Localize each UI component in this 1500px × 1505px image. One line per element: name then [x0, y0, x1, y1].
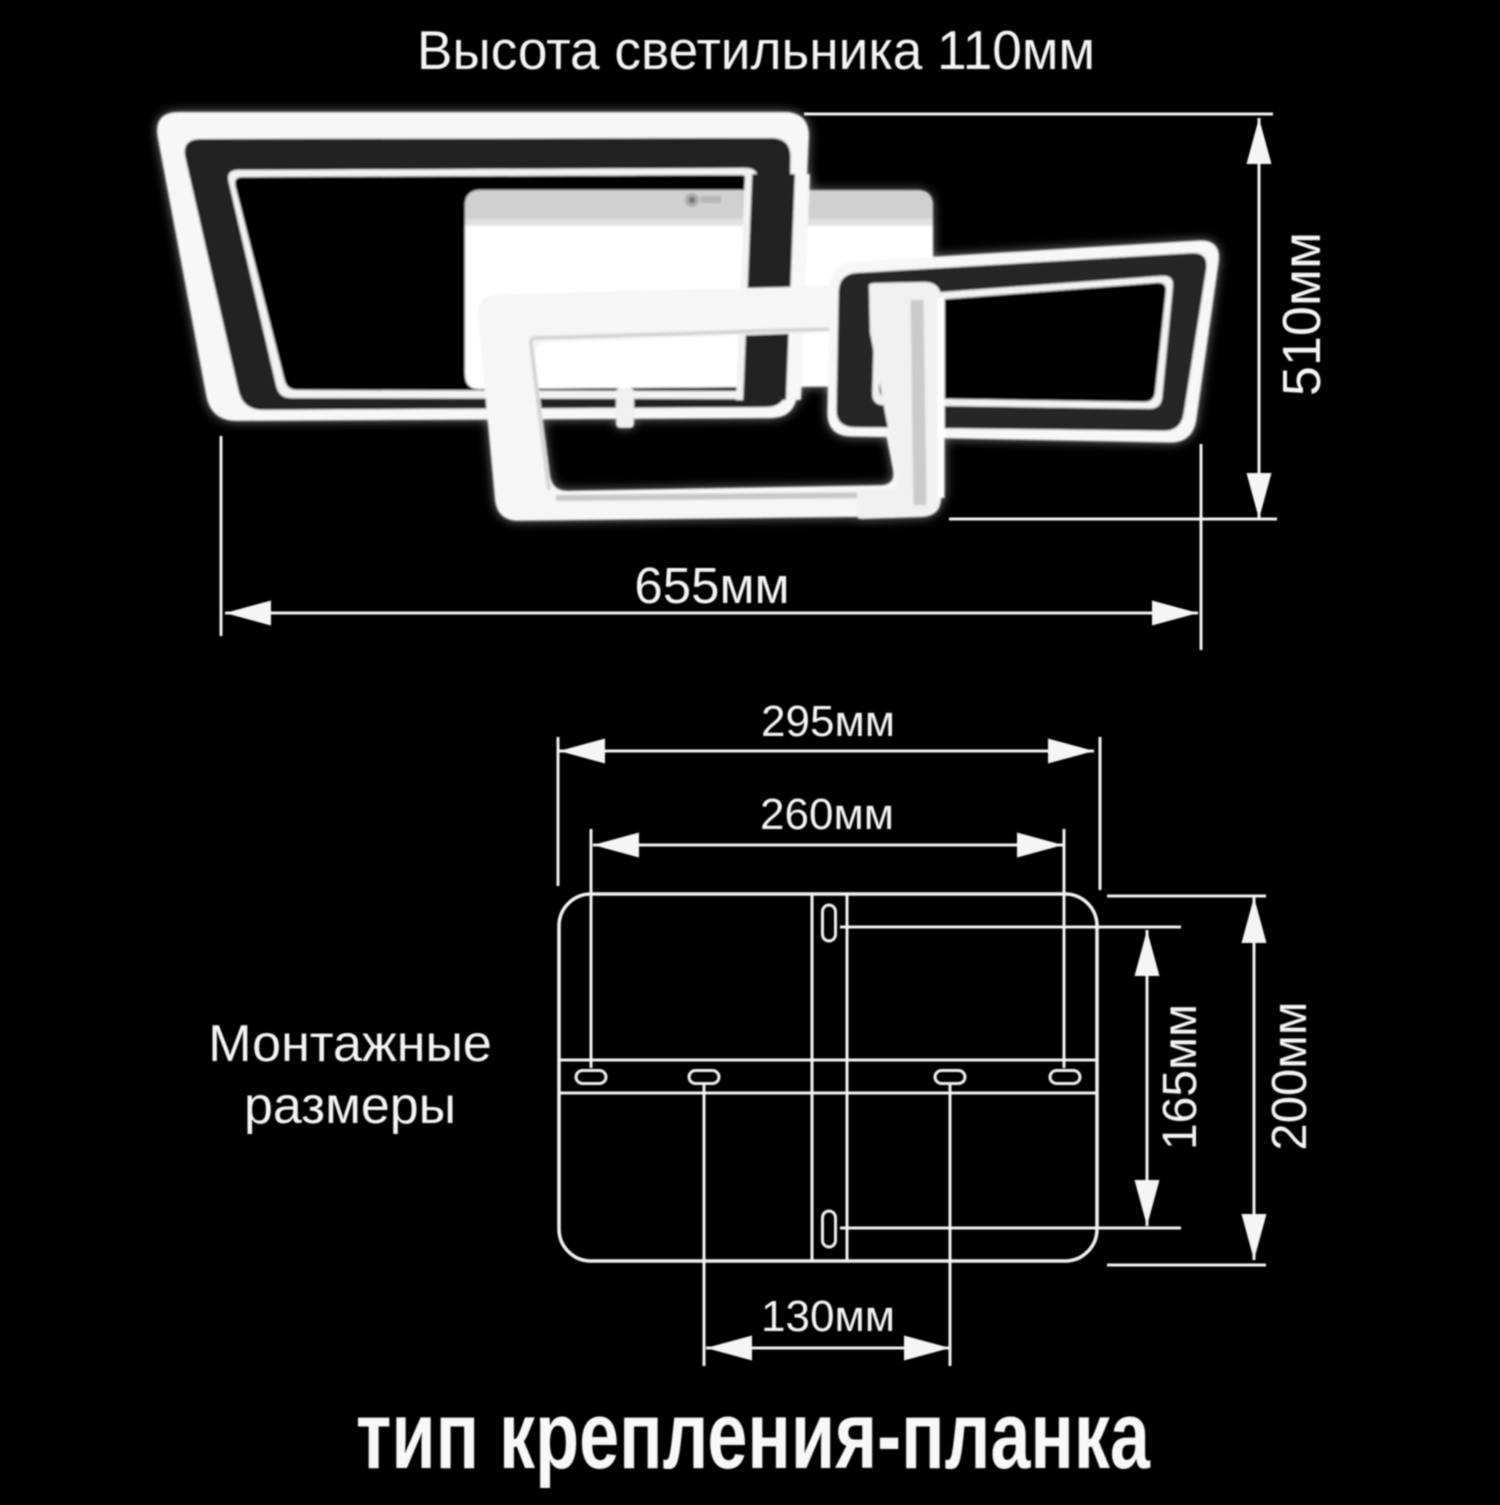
svg-text:Монтажные: Монтажные — [208, 1015, 492, 1073]
svg-text:165мм: 165мм — [1154, 1004, 1207, 1150]
svg-text:260мм: 260мм — [760, 790, 894, 839]
svg-text:130мм: 130мм — [761, 1292, 895, 1341]
svg-text:510мм: 510мм — [1272, 232, 1332, 396]
svg-text:655мм: 655мм — [634, 557, 789, 614]
svg-text:тип крепления-планка: тип крепления-планка — [356, 1381, 1151, 1488]
svg-text:295мм: 295мм — [761, 697, 895, 746]
svg-text:200мм: 200мм — [1263, 1001, 1317, 1150]
svg-text:размеры: размеры — [244, 1077, 456, 1135]
svg-text:Высота светильника 110мм: Высота светильника 110мм — [417, 20, 1095, 81]
